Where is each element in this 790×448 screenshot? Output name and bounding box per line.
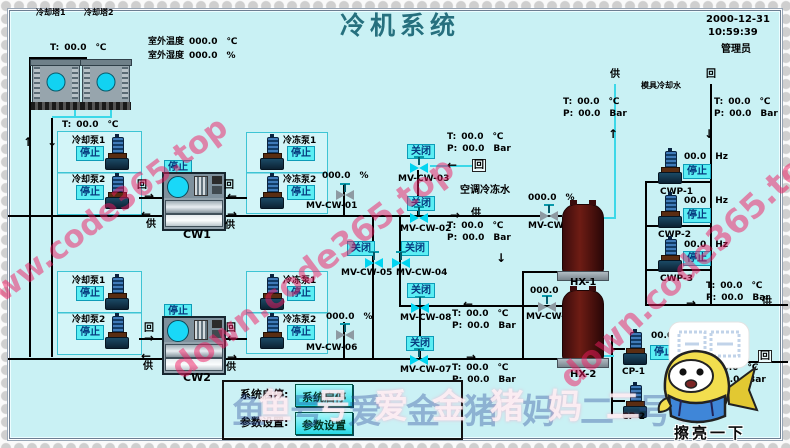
mold-water-label: 模具冷却水 — [641, 80, 681, 91]
page-title: 冷机系统 — [295, 12, 505, 40]
pipe — [681, 269, 711, 271]
valve-id: MV-CW-08 — [400, 313, 451, 324]
tower2-label: 冷却塔2 — [84, 8, 114, 18]
valve-id: MV-CW-03 — [398, 174, 449, 185]
valve-mv-cw-04-icon[interactable] — [392, 255, 410, 268]
cooling-pump-3-icon[interactable] — [105, 276, 129, 310]
heat-exchanger-hx1[interactable] — [562, 204, 604, 274]
param-setting-button[interactable]: 参数设置 — [295, 412, 353, 435]
pipe — [645, 269, 659, 271]
chilled-pump-2-icon[interactable] — [260, 175, 284, 209]
pump-status-badge[interactable]: 停止 — [76, 185, 104, 200]
valve-status-badge[interactable]: 关闭 — [347, 241, 375, 256]
flow-arrow-left: ← — [227, 190, 237, 202]
tower-fan-icon — [47, 73, 66, 92]
flow-arrow-up: ↑ — [608, 128, 618, 140]
valve-mv-cw-01-icon[interactable] — [336, 187, 354, 200]
valve-mv-cw-05-icon[interactable] — [365, 255, 383, 268]
date-display: 2000-12-31 — [706, 13, 770, 26]
outdoor-temp: 室外温度000.0℃ — [148, 36, 237, 48]
chiller-cw1[interactable] — [162, 172, 226, 231]
tower1-label: 冷却塔1 — [36, 8, 66, 18]
cooling-pump-2-icon[interactable] — [105, 175, 129, 209]
valve-opening: 000.0% — [322, 170, 369, 182]
pump-status-badge[interactable]: 停止 — [683, 251, 711, 266]
tower-fan-icon — [97, 73, 116, 92]
user-display: 管理员 — [721, 43, 751, 56]
tower-lid — [30, 59, 82, 66]
valve-status-badge[interactable]: 关闭 — [407, 196, 435, 211]
mascot-caption: 擦亮一下 — [674, 422, 746, 443]
flow-arrow-down: ↓ — [47, 136, 57, 148]
chilled-pump-4-icon[interactable] — [260, 315, 284, 349]
valve-mv-cw-09-icon[interactable] — [540, 208, 558, 221]
pump-name: CP-2 — [622, 412, 645, 423]
flow-arrow-down: ↓ — [704, 128, 714, 140]
hx-name: HX-2 — [570, 369, 596, 380]
tower-return-temp: T:00.0℃ — [62, 119, 118, 131]
pump-status-badge[interactable]: 停止 — [76, 146, 104, 161]
mold-return-reading: T:00.0℃ P:00.0Bar — [714, 96, 778, 120]
heat-exchanger-hx2[interactable] — [562, 290, 604, 361]
mold-supply-reading: T:00.0℃ P:00.0Bar — [563, 96, 627, 120]
valve-mv-cw-07-icon[interactable] — [410, 352, 428, 365]
pipe — [645, 181, 659, 183]
pump-status-badge[interactable]: 停止 — [287, 286, 315, 301]
valve-mv-cw-03-icon[interactable] — [410, 160, 428, 173]
param-setting-label: 参数设置: — [240, 417, 288, 429]
valve-id: MV-CW-02 — [400, 224, 451, 235]
valve-mv-cw-02-icon[interactable] — [410, 210, 428, 223]
cooling-tower-1[interactable] — [32, 62, 80, 110]
valve-id: MV-CW-01 — [306, 201, 357, 212]
supply-label: 供 — [226, 362, 236, 373]
valve-opening: 000.0% — [528, 192, 575, 204]
scada-screen: 冷机系统 2000-12-31 10:59:39 管理员 冷却塔1 冷却塔2 室… — [0, 0, 790, 448]
supply-label: 供 — [225, 220, 235, 231]
chiller-name: CW1 — [183, 229, 211, 240]
cwp-outlet-reading: T:00.0℃ P:00.0Bar — [706, 280, 770, 304]
pump-status-badge[interactable]: 停止 — [76, 286, 104, 301]
supply-label: 供 — [471, 208, 481, 219]
system-start-label: 系统启停: — [240, 389, 288, 401]
cwp2-frequency: 00.0Hz — [684, 195, 728, 207]
flow-arrow-right: → — [227, 208, 237, 220]
pump-status-badge[interactable]: 停止 — [683, 208, 711, 223]
flow-arrow-up: ↑ — [23, 136, 33, 148]
flow-arrow-right: → — [144, 190, 154, 202]
pump-status-badge[interactable]: 停止 — [287, 185, 315, 200]
pipe — [681, 225, 711, 227]
pump-status-badge[interactable]: 停止 — [287, 325, 315, 340]
cooling-tower-2[interactable] — [82, 62, 130, 110]
pump-status-badge[interactable]: 停止 — [683, 164, 711, 179]
supply-label: 供 — [610, 69, 620, 80]
valve-id: MV-CW-07 — [400, 365, 451, 376]
system-start-button[interactable]: 系统启停 — [295, 384, 353, 407]
pump-cwp2-icon[interactable] — [658, 194, 682, 228]
tower-outlet-temp: T:00.0℃ — [50, 42, 106, 54]
valve-mv-cw-06-icon[interactable] — [336, 327, 354, 340]
flow-arrow-right: → — [144, 332, 154, 344]
flow-arrow-down: ↓ — [496, 252, 506, 264]
pipe-supply-main2 — [8, 358, 562, 360]
valve-id: MV-CW-06 — [306, 343, 357, 354]
supply-label: 供 — [143, 361, 153, 372]
valve-id: MV-CW-04 — [396, 268, 447, 279]
pump-name: CWP-3 — [660, 274, 693, 285]
pipe — [51, 118, 53, 357]
pipe — [681, 181, 711, 183]
valve-mv-cw-10-icon[interactable] — [538, 299, 556, 312]
hx-return-reading: T:00.0℃ P:00.0Bar — [452, 308, 516, 332]
cooling-pump-1-icon[interactable] — [105, 136, 129, 170]
cooling-pump-4-icon[interactable] — [105, 315, 129, 349]
ac-return-reading: T:00.0℃ P:00.0Bar — [447, 131, 511, 155]
return-label: 回 — [706, 69, 716, 80]
flow-arrow-left: ← — [227, 332, 237, 344]
pipe — [522, 272, 524, 359]
pipe — [645, 225, 659, 227]
valve-mv-cw-08-icon[interactable] — [411, 300, 429, 313]
chiller-name: CW2 — [183, 372, 211, 383]
pump-cwp3-icon[interactable] — [658, 238, 682, 272]
compressor-icon — [167, 320, 189, 342]
ac-supply-reading: T:00.0℃ P:00.0Bar — [447, 220, 511, 244]
pump-cwp1-icon[interactable] — [658, 150, 682, 184]
pipe — [611, 335, 613, 415]
time-display: 10:59:39 — [708, 26, 758, 39]
pump-status-badge[interactable]: 停止 — [287, 146, 315, 161]
pipe-cyan — [52, 116, 112, 118]
cwp1-frequency: 00.0Hz — [684, 151, 728, 163]
pipe — [522, 271, 562, 273]
flow-arrow-left: ← — [447, 159, 457, 171]
supply-label: 供 — [762, 297, 772, 308]
valve-opening: 000.0% — [326, 311, 373, 323]
flow-arrow-right: → — [686, 297, 696, 309]
chilled-pump-1-icon[interactable] — [260, 136, 284, 170]
cwp3-frequency: 00.0Hz — [684, 239, 728, 251]
valve-status-badge[interactable]: 关闭 — [401, 241, 429, 256]
ac-water-label: 空调冷冻水 — [460, 185, 510, 196]
pipe — [645, 182, 647, 305]
compressor-icon — [167, 176, 189, 198]
pipe — [372, 216, 374, 359]
pump-status-badge[interactable]: 停止 — [76, 325, 104, 340]
supply-label: 供 — [146, 219, 156, 230]
return-label-boxed: 回 — [472, 159, 486, 172]
valve-id: MV-CW-05 — [341, 268, 392, 279]
outdoor-humidity: 室外湿度000.0% — [148, 50, 236, 62]
pump-name: CP-1 — [622, 367, 645, 378]
chiller-cw2[interactable] — [162, 316, 226, 375]
chilled-pump-3-icon[interactable] — [260, 276, 284, 310]
